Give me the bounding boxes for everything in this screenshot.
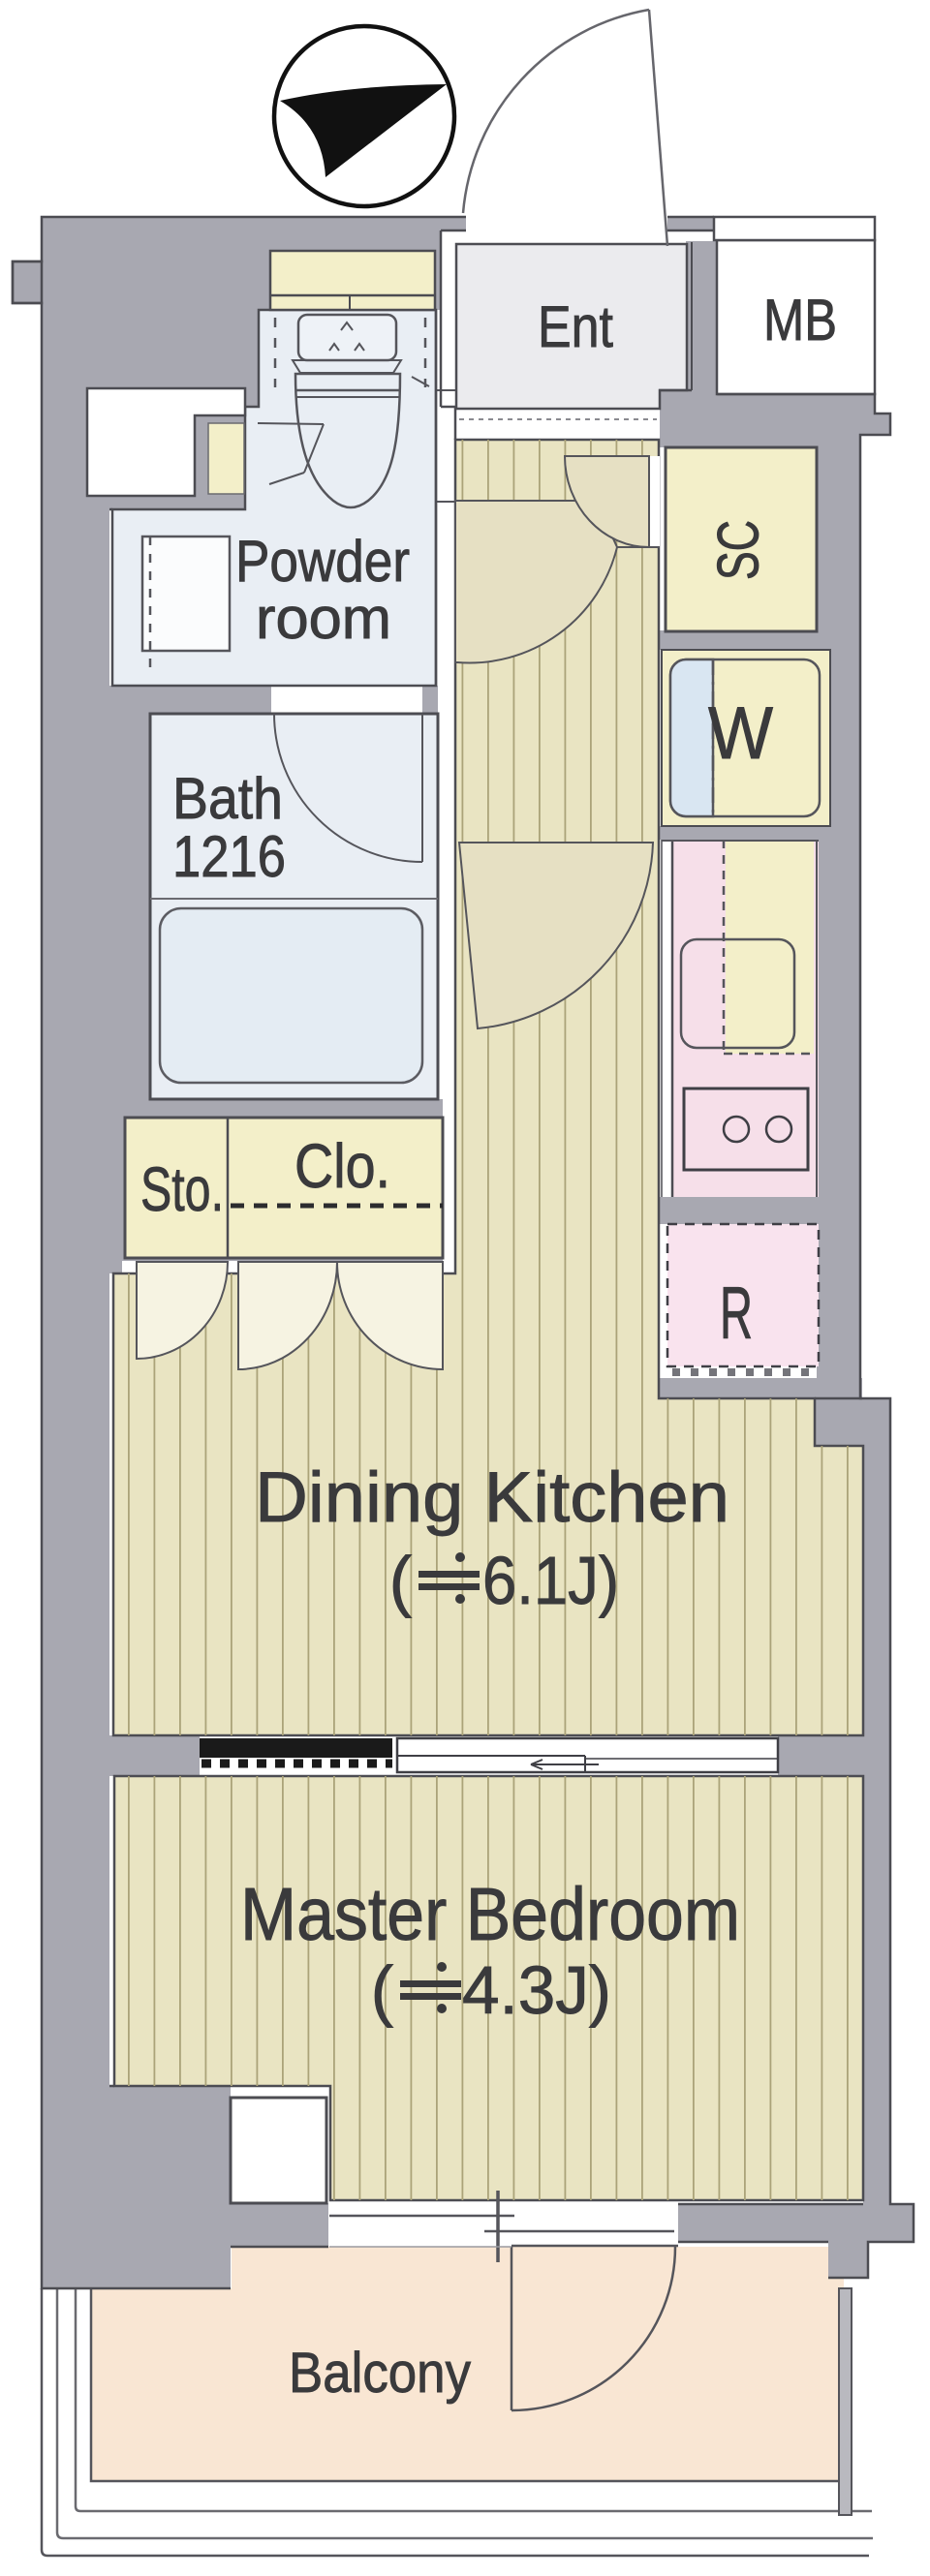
svg-text:Dining Kitchen: Dining Kitchen xyxy=(255,1458,729,1537)
svg-text:Ent: Ent xyxy=(538,294,613,359)
svg-text:6.1J): 6.1J) xyxy=(482,1543,619,1618)
svg-text:(: ( xyxy=(389,1543,412,1618)
svg-text:Sto.: Sto. xyxy=(140,1154,224,1224)
svg-text:Bath: Bath xyxy=(172,766,283,831)
svg-text:Balcony: Balcony xyxy=(289,2342,471,2405)
svg-text:Powder: Powder xyxy=(235,529,410,594)
svg-text:SC: SC xyxy=(706,520,771,580)
svg-text:R: R xyxy=(720,1273,753,1355)
svg-text:4.3J): 4.3J) xyxy=(462,1952,611,2028)
svg-text:1216: 1216 xyxy=(172,824,286,889)
svg-text:(: ( xyxy=(371,1952,393,2028)
svg-text:Master Bedroom: Master Bedroom xyxy=(240,1873,740,1956)
svg-text:room: room xyxy=(256,586,391,651)
svg-text:W: W xyxy=(708,692,773,775)
svg-text:MB: MB xyxy=(763,288,837,353)
svg-text:Clo.: Clo. xyxy=(294,1131,390,1201)
